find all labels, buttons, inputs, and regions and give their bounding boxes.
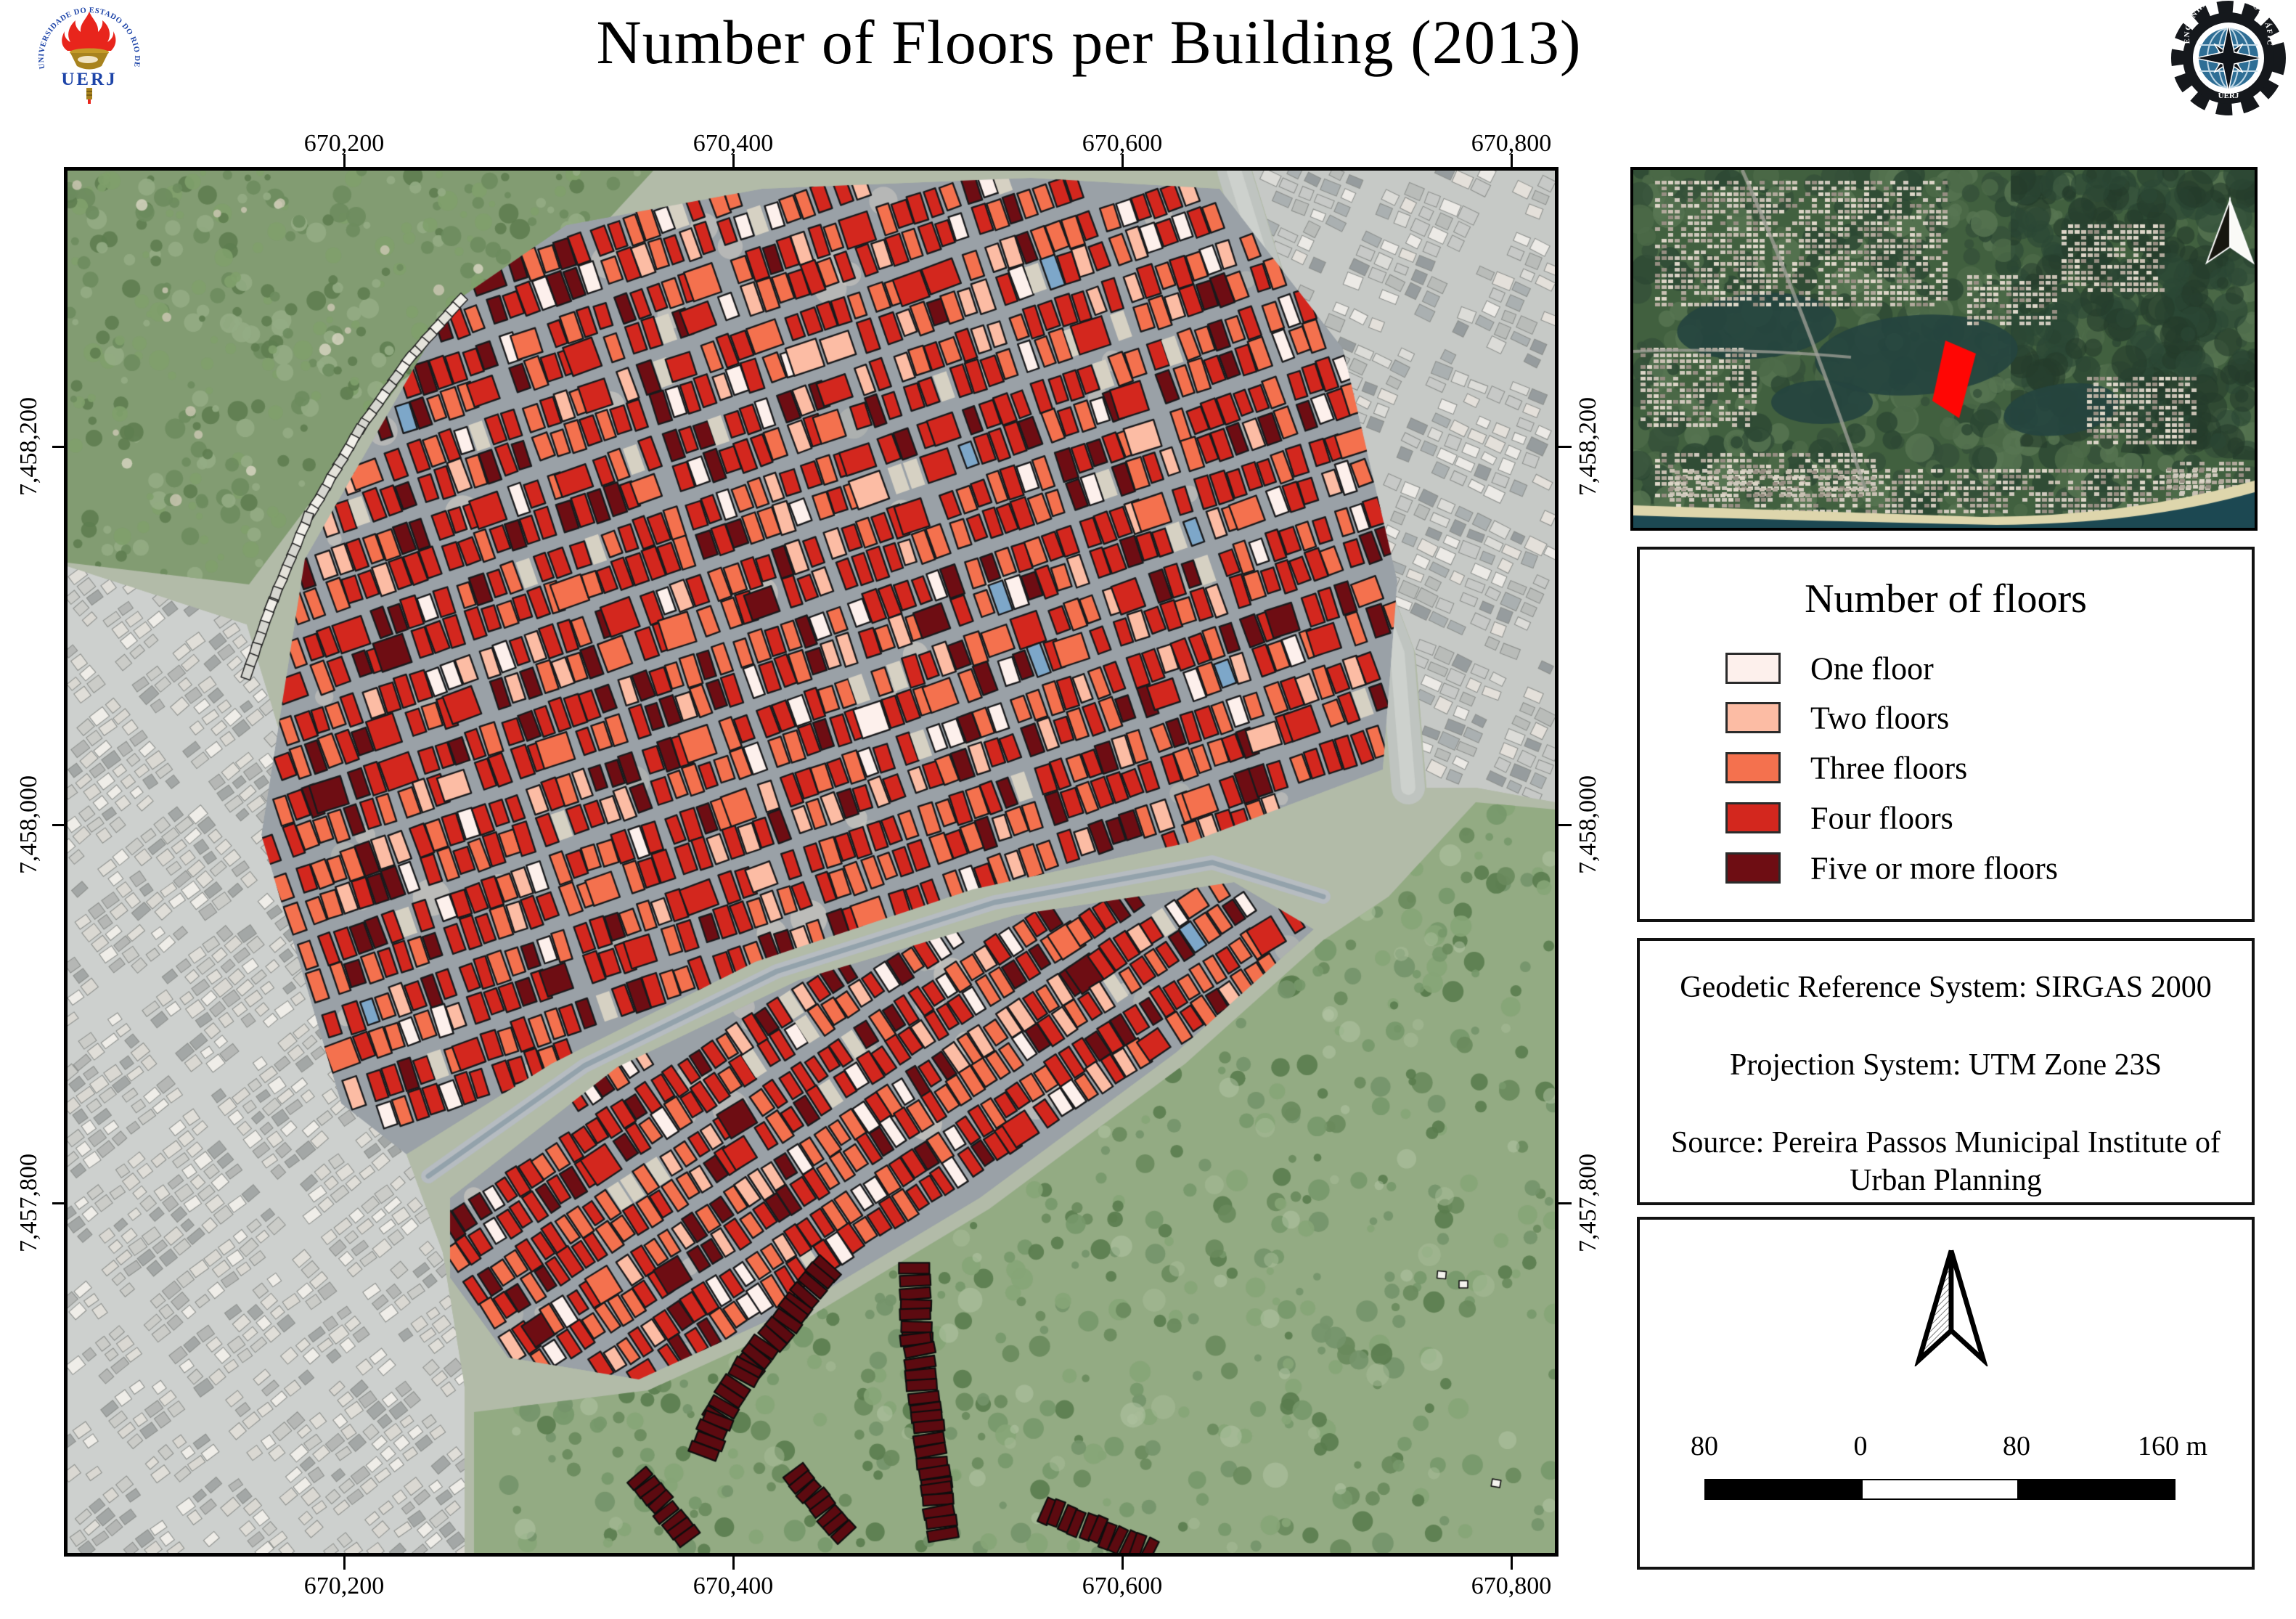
x-coordinate-label: 670,400 (693, 130, 774, 158)
legend-title: Number of floors (1640, 576, 2252, 622)
legend-label: Four floors (1810, 799, 1953, 836)
uerj-logo: UNIVERSIDADE DO ESTADO DO RIO DE JANEIRO… (35, 1, 144, 112)
y-tick (52, 1202, 65, 1204)
y-coordinate-label: 7,458,200 (15, 397, 43, 496)
svg-text:UERJ: UERJ (2218, 91, 2239, 100)
x-coordinate-label: 670,600 (1082, 130, 1163, 158)
legend-item: Four floors (1640, 802, 2252, 833)
main-map-canvas (68, 171, 1555, 1553)
x-tick (1122, 1557, 1124, 1570)
projection-system-text: Projection System: UTM Zone 23S (1640, 1046, 2252, 1084)
x-tick (343, 1557, 346, 1570)
legend-swatch-five-or-more-floors (1725, 852, 1781, 884)
inset-map (1630, 167, 2258, 531)
y-coordinate-label: 7,458,200 (1574, 397, 1602, 496)
y-coordinate-label: 7,458,000 (15, 775, 43, 874)
legend-label: One floor (1810, 650, 1934, 687)
scalebar-segment (1706, 1480, 1861, 1498)
north-arrow-icon (1909, 1244, 1993, 1366)
y-tick (52, 446, 65, 448)
geodetic-reference-text: Geodetic Reference System: SIRGAS 2000 (1640, 968, 2252, 1006)
x-tick (1511, 1557, 1513, 1570)
svg-text:UERJ: UERJ (61, 70, 117, 89)
y-tick (52, 824, 65, 826)
legend-swatch-four-floors (1725, 802, 1781, 833)
y-tick (1558, 1202, 1572, 1204)
legend-swatch-three-floors (1725, 752, 1781, 783)
legend-swatch-one-floor (1725, 653, 1781, 684)
legend-label: Five or more floors (1810, 849, 2058, 886)
scalebar-label: 80 (2003, 1430, 2030, 1462)
scalebar-label: 80 (1691, 1430, 1718, 1462)
scalebar-segment (2019, 1480, 2174, 1498)
main-map (64, 167, 1558, 1557)
x-coordinate-label: 670,800 (1471, 130, 1552, 158)
map-info-box: Geodetic Reference System: SIRGAS 2000 P… (1637, 938, 2255, 1205)
x-coordinate-label: 670,400 (693, 1573, 774, 1600)
x-coordinate-label: 670,800 (1471, 1573, 1552, 1600)
scalebar-label: 0 (1854, 1430, 1868, 1462)
scalebar (1704, 1479, 2176, 1500)
legend-item: One floor (1640, 653, 2252, 684)
legend-label: Three floors (1810, 749, 1967, 786)
y-coordinate-label: 7,458,000 (1574, 775, 1602, 874)
legend-item: Three floors (1640, 752, 2252, 783)
y-tick (1558, 824, 1572, 826)
map-layout-page: Number of Floors per Building (2013) UNI… (0, 0, 2296, 1619)
x-coordinate-label: 670,600 (1082, 1573, 1163, 1600)
scalebar-segment (1861, 1480, 2019, 1498)
legend-swatch-two-floors (1725, 702, 1781, 733)
x-coordinate-label: 670,200 (304, 1573, 385, 1600)
legend-item: Five or more floors (1640, 852, 2252, 884)
source-text: Source: Pereira Passos Municipal Institu… (1640, 1124, 2252, 1199)
x-tick (732, 1557, 735, 1570)
north-arrow-scalebar-box: 80 0 80 160 m (1637, 1217, 2255, 1570)
inset-map-canvas (1633, 170, 2255, 528)
x-coordinate-label: 670,200 (304, 130, 385, 158)
legend-item: Two floors (1640, 702, 2252, 733)
y-coordinate-label: 7,457,800 (1574, 1154, 1602, 1252)
legend-label: Two floors (1810, 699, 1949, 736)
page-title: Number of Floors per Building (2013) (508, 6, 1670, 78)
cartography-logo: ENGENHARIA CARTOGRÁFICA UERJ (2170, 0, 2287, 116)
scalebar-label: 160 m (2138, 1430, 2207, 1462)
y-coordinate-label: 7,457,800 (15, 1154, 43, 1252)
y-tick (1558, 446, 1572, 448)
legend: Number of floors One floor Two floors Th… (1637, 547, 2255, 922)
